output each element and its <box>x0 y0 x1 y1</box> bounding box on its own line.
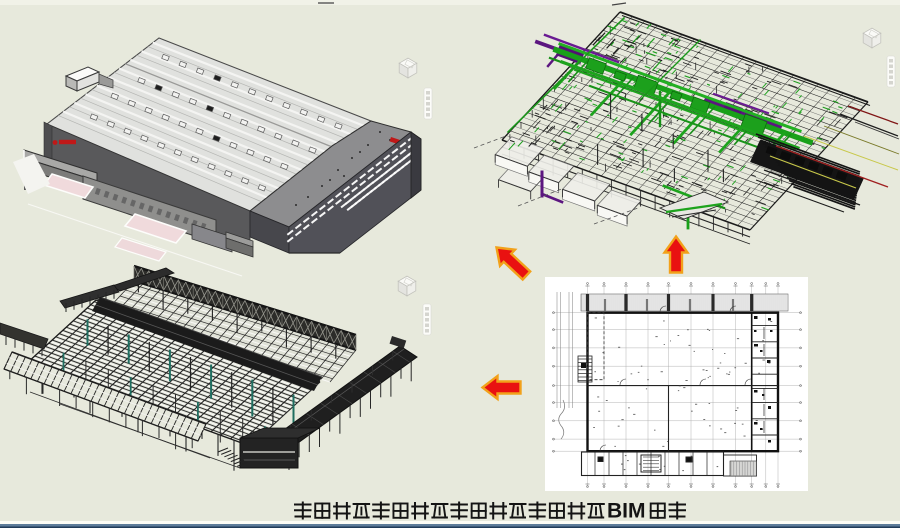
svg-text:BIM: BIM <box>607 500 646 523</box>
